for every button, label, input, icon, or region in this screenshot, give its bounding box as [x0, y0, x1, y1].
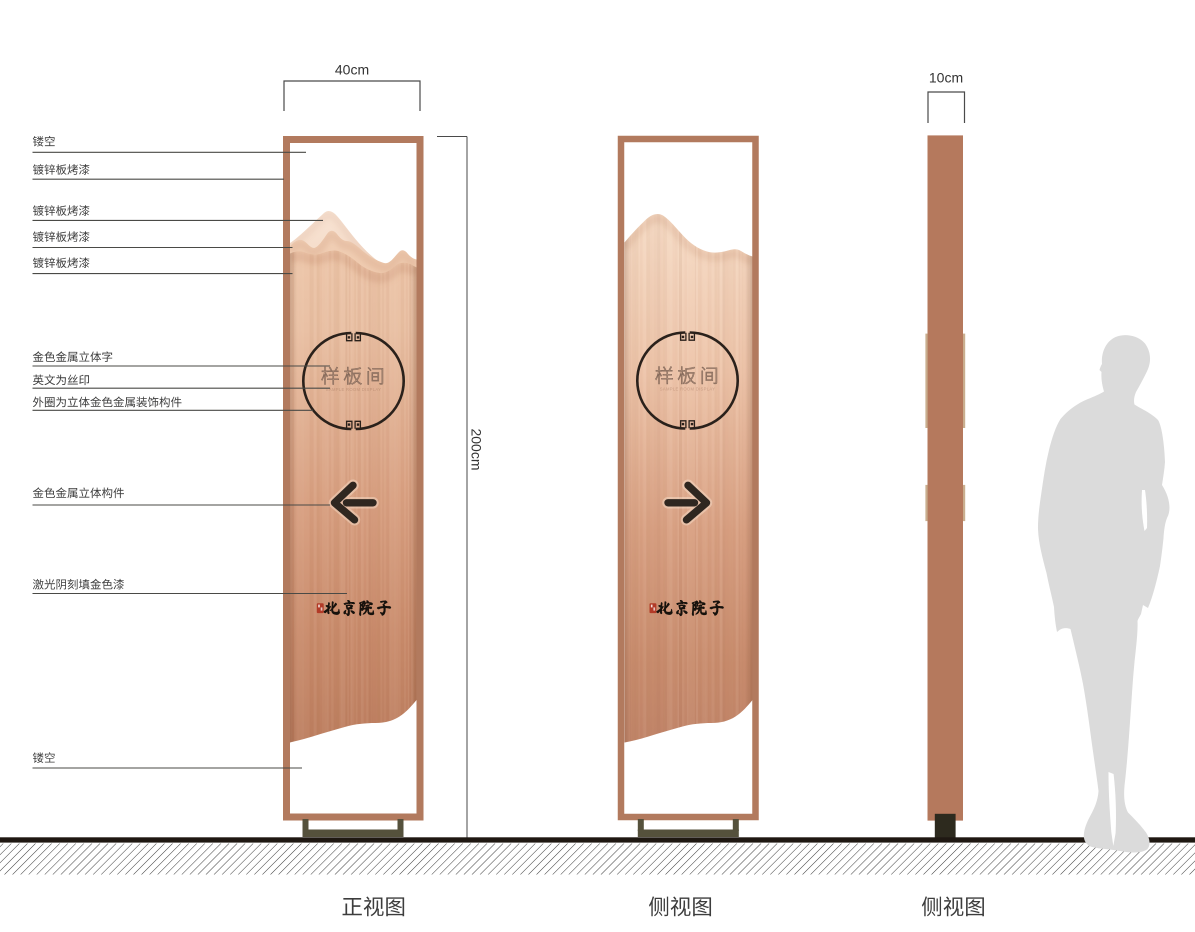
svg-text:40cm: 40cm	[335, 62, 369, 78]
svg-text:10cm: 10cm	[929, 70, 963, 86]
svg-text:200cm: 200cm	[469, 428, 485, 470]
svg-text:SAMPLE ROOM DISPLAY: SAMPLE ROOM DISPLAY	[660, 386, 715, 391]
svg-text:SAMPLE ROOM DISPLAY: SAMPLE ROOM DISPLAY	[326, 387, 381, 392]
